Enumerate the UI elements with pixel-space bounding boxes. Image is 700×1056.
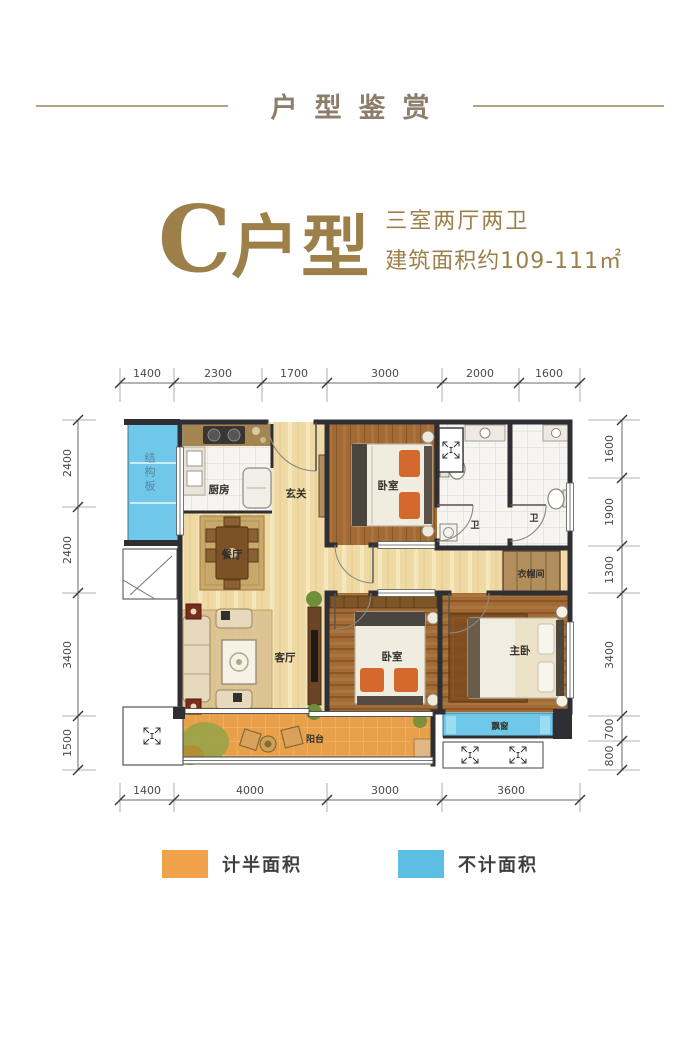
label-foyer: 玄关: [286, 487, 307, 500]
dim-right-1: 1600: [603, 435, 616, 463]
dim-left-2: 2400: [61, 536, 74, 564]
ac-platform: [443, 742, 543, 768]
plant-icon: [306, 591, 322, 607]
label-structure-board: 结构板: [141, 452, 157, 522]
label-dining: 餐厅: [221, 548, 243, 561]
unit-type-word: 户型: [231, 208, 371, 288]
legend-item-half-area: 计半面积: [162, 850, 302, 878]
label-bath1: 卫: [470, 520, 479, 531]
unit-name: C户型: [158, 198, 371, 281]
floorplan-drawing: 1400 2300 1700 3000 2000 1600 1400 4000 …: [0, 355, 700, 835]
unit-layout: 三室两厅两卫: [385, 203, 622, 235]
page-title: 户型鉴赏: [254, 86, 447, 125]
floorplan-flyer: 户型鉴赏 C户型 三室两厅两卫 建筑面积约109-111㎡: [0, 0, 700, 1056]
unit-description: 三室两厅两卫 建筑面积约109-111㎡: [385, 203, 622, 275]
pillow-icon: [538, 624, 554, 654]
sink-icon: [480, 428, 490, 438]
dim-bottom-3: 3000: [371, 784, 399, 797]
label-master: 主卧: [510, 644, 531, 657]
balcony-chair-icon: [281, 726, 303, 748]
dim-top-3: 1700: [280, 367, 308, 380]
sofa-icon: [183, 616, 210, 702]
toilet-icon: [548, 489, 564, 509]
dim-bottom-2: 4000: [236, 784, 264, 797]
dim-top-6: 1600: [535, 367, 563, 380]
dim-top-2: 2300: [204, 367, 232, 380]
dimension-right: 1600 1900 1300 3400 700 800: [588, 415, 640, 775]
legend-label-half-area: 计半面积: [222, 851, 302, 877]
wardrobe-icon: [330, 596, 437, 608]
dimension-top: 1400 2300 1700 3000 2000 1600: [115, 367, 585, 402]
tv-icon: [311, 630, 318, 682]
sink-icon: [552, 429, 561, 438]
legend-swatch-blue: [398, 850, 444, 878]
page-header: 户型鉴赏: [0, 86, 700, 125]
kitchen-sink-icon: [187, 451, 202, 466]
unit-area: 建筑面积约109-111㎡: [385, 243, 622, 275]
label-bedroom2: 卧室: [382, 650, 403, 663]
legend: 计半面积 不计面积: [0, 850, 700, 878]
legend-swatch-orange: [162, 850, 208, 878]
dim-right-3: 1300: [603, 556, 616, 584]
sliding-door-icon: [185, 709, 309, 714]
header-rule-left: [36, 105, 228, 107]
dim-top-5: 2000: [466, 367, 494, 380]
void-box: [123, 549, 177, 599]
label-balcony: 阳台: [306, 733, 324, 745]
dim-top-4: 3000: [371, 367, 399, 380]
dim-top-1: 1400: [133, 367, 161, 380]
dim-left-4: 1500: [61, 729, 74, 757]
unit-series-letter: C: [158, 185, 231, 293]
pillow-icon: [399, 492, 420, 519]
washer-icon: [440, 524, 457, 541]
label-bay-window: 飘窗: [491, 721, 509, 732]
wall-block: [553, 709, 572, 739]
dimension-bottom: 1400 4000 3000 3600: [115, 783, 585, 812]
pillow-icon: [399, 450, 420, 477]
sliding-door-icon: [309, 712, 433, 717]
legend-label-excluded-area: 不计面积: [458, 851, 538, 877]
label-closet: 衣帽间: [517, 568, 544, 580]
legend-item-excluded-area: 不计面积: [398, 850, 538, 878]
label-bedroom1: 卧室: [378, 479, 399, 492]
dim-right-5: 700: [603, 719, 616, 740]
dim-left-1: 2400: [61, 449, 74, 477]
dim-right-2: 1900: [603, 498, 616, 526]
dimension-left: 2400 2400 3400 1500: [61, 415, 96, 775]
pillow-icon: [394, 668, 418, 692]
dim-left-3: 3400: [61, 641, 74, 669]
header-rule-right: [473, 105, 665, 107]
pillow-icon: [360, 668, 384, 692]
dim-bottom-1: 1400: [133, 784, 161, 797]
dim-right-4: 3400: [603, 641, 616, 669]
dim-bottom-4: 3600: [497, 784, 525, 797]
unit-title-block: C户型 三室两厅两卫 建筑面积约109-111㎡: [158, 198, 622, 281]
master-furniture: [449, 606, 568, 707]
dim-right-6: 800: [603, 746, 616, 767]
label-bath2: 卫: [529, 513, 538, 524]
label-kitchen: 厨房: [209, 483, 230, 496]
label-living: 客厅: [274, 651, 296, 664]
pillow-icon: [538, 662, 554, 692]
